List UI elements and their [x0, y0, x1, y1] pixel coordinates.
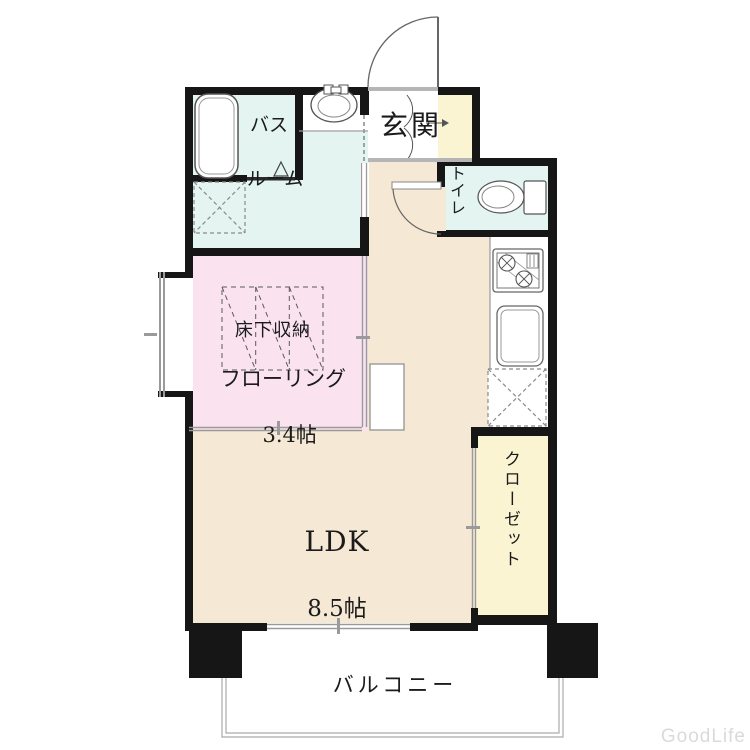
bay-window [144, 272, 193, 397]
wall-washroom-bottom [185, 248, 368, 256]
entrance-label: 玄関 [380, 104, 442, 144]
bay-window-glass-outer [159, 272, 161, 397]
entrance-threshold [368, 87, 438, 91]
fridge-box [488, 369, 546, 426]
floor-plan: バス ルーム 玄関 トイレ 床下収納 フローリング 3.4帖 LDK 8.5帖 … [0, 0, 750, 750]
closet-label: クローゼット [498, 450, 523, 602]
flooring-room-label: フローリング 3.4帖 [196, 365, 370, 449]
pillar-right [547, 623, 598, 678]
underfloor-storage-label: 床下収納 [224, 316, 322, 342]
entrance-door [368, 17, 438, 91]
stove-grill [527, 254, 538, 268]
wall-kitchen-closet [471, 427, 548, 436]
ldk-name: LDK [267, 525, 407, 558]
wall-right-outer [548, 158, 557, 618]
stove [493, 249, 543, 292]
bathroom-label-line2: ルーム [247, 168, 303, 190]
toilet-fixture [478, 181, 546, 214]
kitchen [488, 237, 546, 426]
faucet-spout [331, 87, 341, 93]
wall-washroom-genkan [360, 87, 369, 115]
refrigerator-space [488, 369, 546, 426]
wall-left-lower [185, 397, 193, 630]
hallway-floor [368, 162, 437, 239]
bay-window-tick [144, 333, 157, 336]
watermark: GoodLife [661, 726, 746, 748]
genkan-edge-line [368, 158, 472, 162]
wall-entrance-right [472, 87, 480, 162]
pillar-left [189, 625, 242, 678]
wall-washroom-right-lower [360, 216, 369, 256]
washroom-door [360, 163, 369, 217]
toilet-tank [524, 181, 546, 214]
ldk-label: LDK 8.5帖 [267, 487, 407, 661]
entrance-door-swing [368, 17, 438, 87]
toilet-door-leaf [392, 182, 441, 189]
entrance-cabinet [438, 91, 472, 162]
bathroom-label: バス ルーム [208, 112, 330, 193]
bathroom-label-line1: バス [250, 114, 288, 136]
ldk-size: 8.5帖 [267, 596, 407, 623]
wall-ldk-bottom-right [410, 623, 478, 631]
bay-window-glass-inner [163, 272, 165, 397]
flooring-room-size: 3.4帖 [262, 423, 316, 447]
door-tick [356, 336, 370, 339]
balcony-label: バルコニー [282, 669, 508, 699]
toilet-label: トイレ [444, 165, 468, 237]
door-tick [466, 526, 480, 529]
hall-cabinet [370, 364, 404, 430]
wall-closet-bottom [471, 615, 557, 625]
kitchen-sink-outer [497, 306, 543, 366]
flooring-room-name: フローリング [220, 367, 346, 391]
wall-closet-left-top [471, 427, 478, 448]
